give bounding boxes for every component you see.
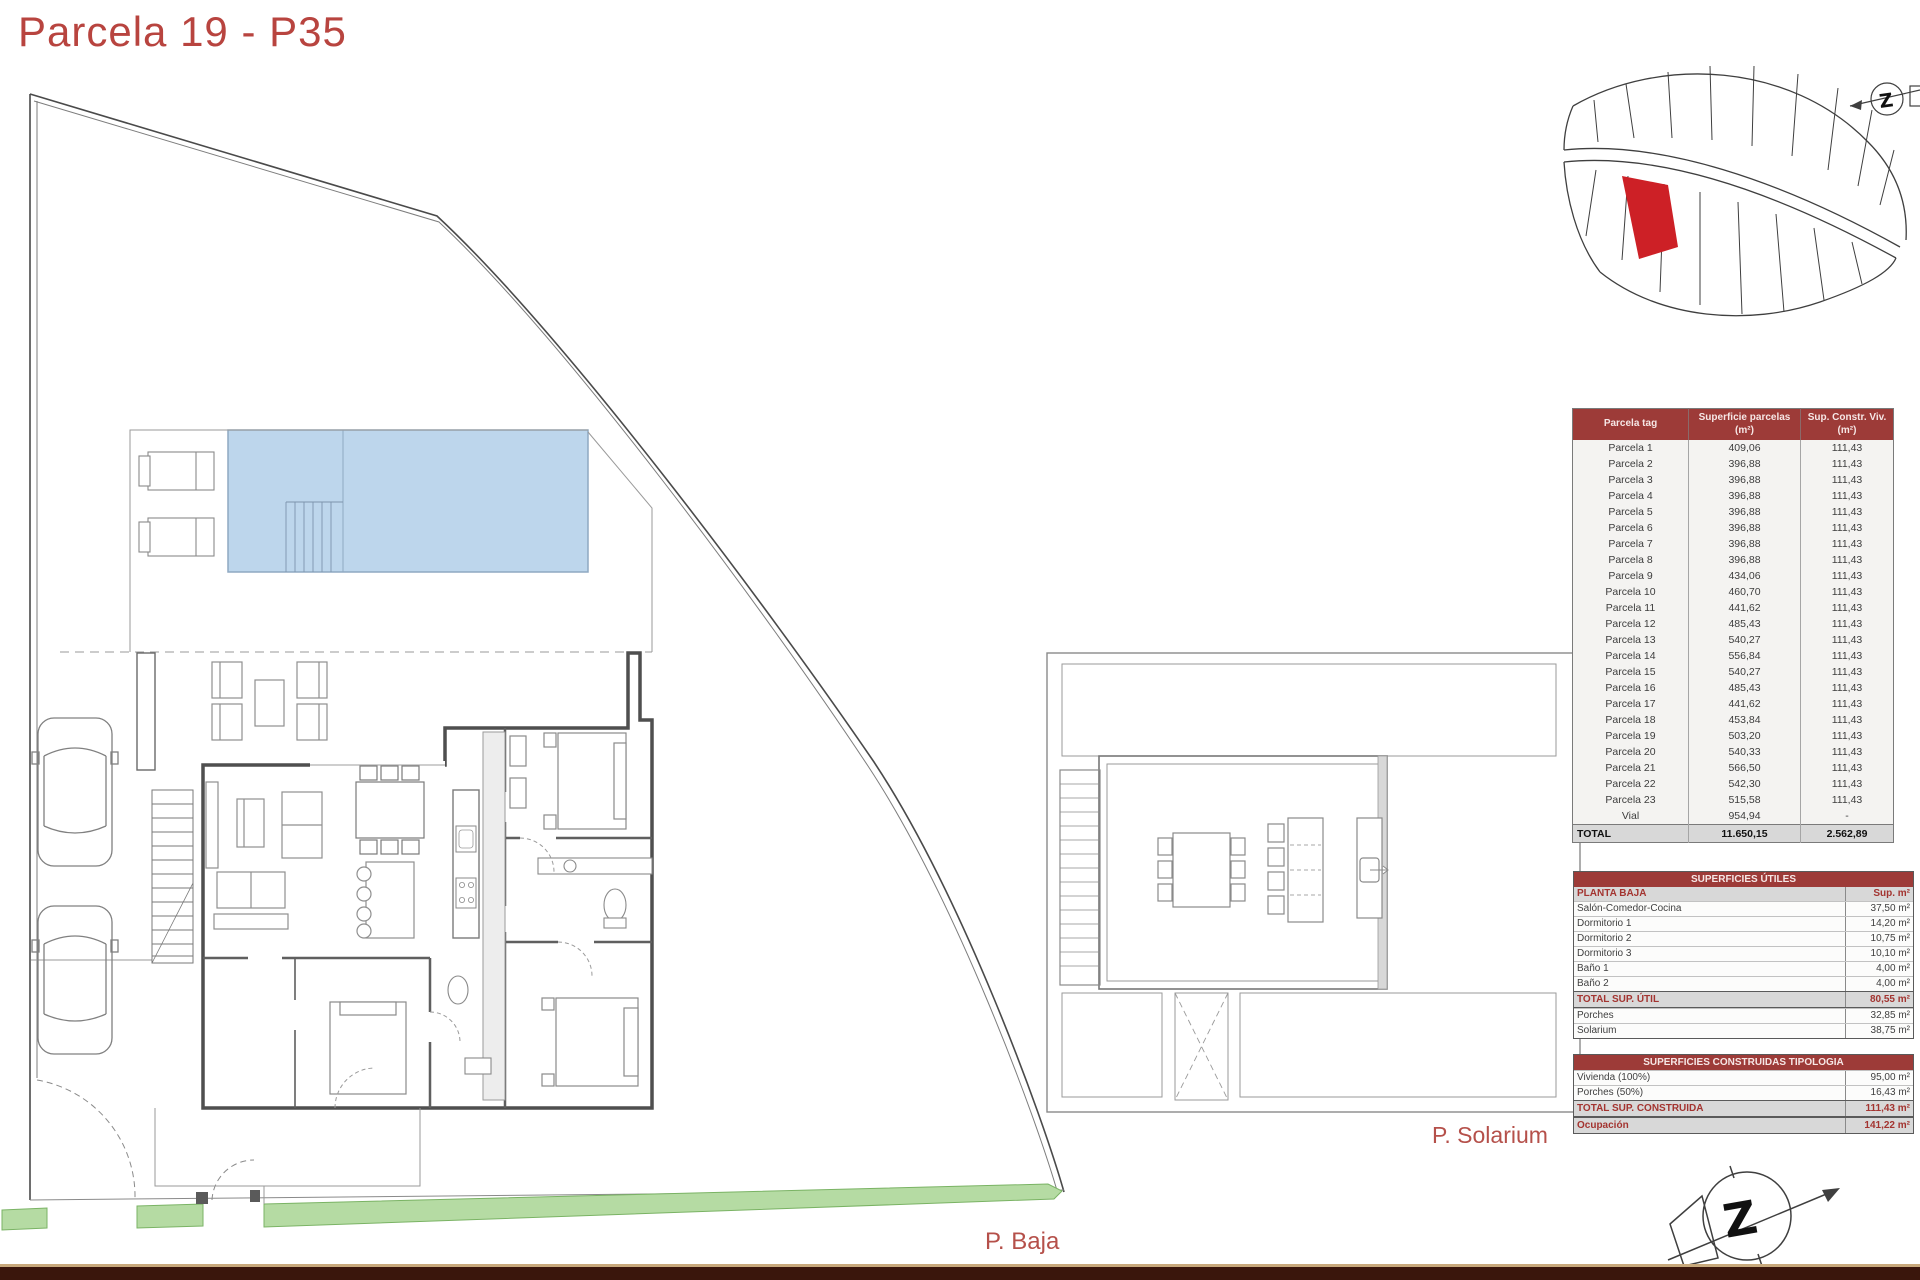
area-row: Baño 24,00 m² [1574,976,1913,991]
table-cell: 540,27 [1689,664,1801,680]
table-cell: 111,43 [1801,632,1894,648]
useful-areas-title: SUPERFICIES ÚTILES [1574,872,1913,887]
page-title: Parcela 19 - P35 [18,8,347,56]
solarium-plan-label: P. Solarium [1432,1122,1548,1149]
table-cell: 396,88 [1689,456,1801,472]
page: { "title": "Parcela 19 - P35", "labels":… [0,0,1920,1280]
built-areas-title: SUPERFICIES CONSTRUIDAS TIPOLOGIA [1574,1055,1913,1070]
table-cell: 396,88 [1689,472,1801,488]
table-cell: Parcela 5 [1573,504,1689,520]
area-value: 4,00 m² [1845,962,1913,976]
table-row: Parcela 4396,88111,43 [1573,488,1894,504]
col-header-parcela: Parcela tag [1573,409,1689,441]
footer-bar [0,1267,1920,1280]
area-value: 37,50 m² [1845,902,1913,916]
area-name: Dormitorio 3 [1574,947,1845,961]
table-cell: Parcela 3 [1573,472,1689,488]
gate-posts [196,1190,260,1204]
table-cell: 954,94 [1689,808,1801,825]
table-cell: 111,43 [1801,600,1894,616]
table-cell: 503,20 [1689,728,1801,744]
area-row: Dormitorio 310,10 m² [1574,946,1913,961]
area-row: Baño 14,00 m² [1574,961,1913,976]
parcel-areas-table: Parcela tag Superficie parcelas(m²) Sup.… [1572,408,1894,843]
table-cell: Parcela 1 [1573,440,1689,456]
car-2 [32,906,118,1054]
sidewalk-green-strip [2,1184,1062,1230]
table-row: Parcela 17441,62111,43 [1573,696,1894,712]
table-cell: 111,43 [1801,568,1894,584]
table-cell: 111,43 [1801,488,1894,504]
table-cell: 111,43 [1801,728,1894,744]
table-row: Parcela 5396,88111,43 [1573,504,1894,520]
table-cell: 556,84 [1689,648,1801,664]
table-cell: 441,62 [1689,600,1801,616]
table-cell: 111,43 [1801,536,1894,552]
table-cell: 396,88 [1689,504,1801,520]
north-compass-icon-large: Z [1668,1166,1840,1266]
area-row: Porches (50%)16,43 m² [1574,1085,1913,1100]
area-name: Salón-Comedor-Cocina [1574,902,1845,916]
table-row: Parcela 10460,70111,43 [1573,584,1894,600]
table-cell: 111,43 [1801,712,1894,728]
area-name: Baño 1 [1574,962,1845,976]
area-value: 10,10 m² [1845,947,1913,961]
entry-porch [155,1108,420,1204]
swimming-pool [228,430,588,572]
table-cell: Vial [1573,808,1689,825]
table-cell: 111,43 [1801,744,1894,760]
porch-furniture [212,662,327,740]
total-sup-constr: 2.562,89 [1801,825,1894,843]
table-cell: Parcela 14 [1573,648,1689,664]
built-areas-total-row: TOTAL SUP. CONSTRUIDA 111,43 m² [1574,1100,1913,1116]
area-row: Dormitorio 210,75 m² [1574,931,1913,946]
total-superficie: 11.650,15 [1689,825,1801,843]
table-row: Parcela 7396,88111,43 [1573,536,1894,552]
table-header-row: Parcela tag Superficie parcelas(m²) Sup.… [1573,409,1894,441]
table-cell: 111,43 [1801,696,1894,712]
table-cell: 485,43 [1689,680,1801,696]
table-cell: Parcela 23 [1573,792,1689,808]
total-label: TOTAL [1573,825,1689,843]
table-cell: 111,43 [1801,552,1894,568]
area-name: Vivienda (100%) [1574,1071,1845,1085]
area-name: Dormitorio 1 [1574,917,1845,931]
table-cell: 460,70 [1689,584,1801,600]
dining-set [356,766,424,854]
table-cell: 111,43 [1801,776,1894,792]
table-row: Parcela 13540,27111,43 [1573,632,1894,648]
area-row: Dormitorio 114,20 m² [1574,916,1913,931]
area-name: Porches (50%) [1574,1086,1845,1100]
table-cell: 396,88 [1689,552,1801,568]
area-value: 14,20 m² [1845,917,1913,931]
exterior-stairs [152,790,193,963]
area-value: 32,85 m² [1845,1009,1913,1023]
table-row: Parcela 2396,88111,43 [1573,456,1894,472]
table-row: Parcela 21566,50111,43 [1573,760,1894,776]
table-cell: 111,43 [1801,760,1894,776]
table-cell: Parcela 6 [1573,520,1689,536]
table-cell: 515,58 [1689,792,1801,808]
table-cell: 409,06 [1689,440,1801,456]
table-cell: Parcela 10 [1573,584,1689,600]
table-cell: Parcela 22 [1573,776,1689,792]
table-cell: Parcela 21 [1573,760,1689,776]
table-row: Parcela 8396,88111,43 [1573,552,1894,568]
solarium-lower-strip [1062,993,1556,1100]
col-header-sup-constr: Sup. Constr. Viv.(m²) [1801,409,1894,441]
table-cell: 111,43 [1801,664,1894,680]
solarium-stairs [1060,770,1100,985]
col-header-superficie: Superficie parcelas(m²) [1689,409,1801,441]
solarium-plan [1047,653,1580,1112]
table-cell: 453,84 [1689,712,1801,728]
table-row: Parcela 16485,43111,43 [1573,680,1894,696]
site-location-inset [1564,66,1906,316]
table-cell: 542,30 [1689,776,1801,792]
area-name: Dormitorio 2 [1574,932,1845,946]
area-name: Baño 2 [1574,977,1845,991]
table-cell: 111,43 [1801,472,1894,488]
area-row: Porches32,85 m² [1574,1008,1913,1023]
table-row: Parcela 11441,62111,43 [1573,600,1894,616]
area-value: 95,00 m² [1845,1071,1913,1085]
area-value: 4,00 m² [1845,977,1913,991]
solarium-dining-set [1158,833,1245,907]
solarium-bar-counter [1268,818,1323,922]
svg-text:Z: Z [1719,1190,1761,1249]
north-compass-icon-small: Z [1850,83,1920,115]
table-cell: 111,43 [1801,648,1894,664]
table-cell: 396,88 [1689,536,1801,552]
area-row: Vivienda (100%)95,00 m² [1574,1070,1913,1085]
useful-areas-total-row: TOTAL SUP. ÚTIL 80,55 m² [1574,991,1913,1008]
table-row: Parcela 14556,84111,43 [1573,648,1894,664]
table-cell: Parcela 11 [1573,600,1689,616]
table-cell: Parcela 19 [1573,728,1689,744]
table-cell: 111,43 [1801,456,1894,472]
useful-areas-table: SUPERFICIES ÚTILES PLANTA BAJA Sup. m² S… [1573,871,1914,1039]
occupation-row: Ocupación 141,22 m² [1573,1117,1914,1134]
table-cell: 111,43 [1801,504,1894,520]
table-cell: Parcela 17 [1573,696,1689,712]
table-cell: 111,43 [1801,792,1894,808]
bedroom-2 [542,998,638,1086]
table-cell: Parcela 2 [1573,456,1689,472]
area-value: 38,75 m² [1845,1024,1913,1038]
car-1 [32,718,118,866]
table-cell: Parcela 9 [1573,568,1689,584]
table-row: Parcela 6396,88111,43 [1573,520,1894,536]
table-row: Parcela 12485,43111,43 [1573,616,1894,632]
area-name: Solarium [1574,1024,1845,1038]
table-row: Parcela 20540,33111,43 [1573,744,1894,760]
table-cell: 111,43 [1801,440,1894,456]
ground-floor-plan-label: P. Baja [985,1228,1059,1256]
table-cell: Parcela 18 [1573,712,1689,728]
table-total-row: TOTAL 11.650,15 2.562,89 [1573,825,1894,843]
table-cell: Parcela 16 [1573,680,1689,696]
table-cell: 111,43 [1801,520,1894,536]
highlighted-parcel [1622,176,1678,259]
table-row: Parcela 3396,88111,43 [1573,472,1894,488]
table-cell: 111,43 [1801,584,1894,600]
table-cell: 111,43 [1801,680,1894,696]
table-row: Parcela 23515,58111,43 [1573,792,1894,808]
table-cell: Parcela 15 [1573,664,1689,680]
area-value: 10,75 m² [1845,932,1913,946]
table-cell: 441,62 [1689,696,1801,712]
table-cell: 396,88 [1689,488,1801,504]
built-areas-table: SUPERFICIES CONSTRUIDAS TIPOLOGIA Vivien… [1573,1054,1914,1117]
table-row: Parcela 18453,84111,43 [1573,712,1894,728]
table-row: Parcela 22542,30111,43 [1573,776,1894,792]
useful-areas-subheader: PLANTA BAJA Sup. m² [1574,887,1913,901]
table-row: Parcela 1409,06111,43 [1573,440,1894,456]
table-row: Vial954,94- [1573,808,1894,825]
table-cell: Parcela 7 [1573,536,1689,552]
svg-text:Z: Z [1878,89,1895,113]
table-cell: - [1801,808,1894,825]
table-cell: 540,27 [1689,632,1801,648]
bedroom-3 [330,1002,406,1094]
table-cell: 434,06 [1689,568,1801,584]
table-row: Parcela 15540,27111,43 [1573,664,1894,680]
area-name: Porches [1574,1009,1845,1023]
table-row: Parcela 9434,06111,43 [1573,568,1894,584]
table-cell: Parcela 20 [1573,744,1689,760]
area-value: 16,43 m² [1845,1086,1913,1100]
table-row: Parcela 19503,20111,43 [1573,728,1894,744]
table-cell: 540,33 [1689,744,1801,760]
table-cell: 396,88 [1689,520,1801,536]
table-cell: 485,43 [1689,616,1801,632]
table-cell: Parcela 4 [1573,488,1689,504]
sun-loungers [139,452,214,556]
table-cell: 566,50 [1689,760,1801,776]
table-cell: Parcela 12 [1573,616,1689,632]
area-row: Solarium38,75 m² [1574,1023,1913,1038]
table-cell: Parcela 8 [1573,552,1689,568]
table-cell: 111,43 [1801,616,1894,632]
table-cell: Parcela 13 [1573,632,1689,648]
area-row: Salón-Comedor-Cocina37,50 m² [1574,901,1913,916]
planter-column [137,653,155,770]
